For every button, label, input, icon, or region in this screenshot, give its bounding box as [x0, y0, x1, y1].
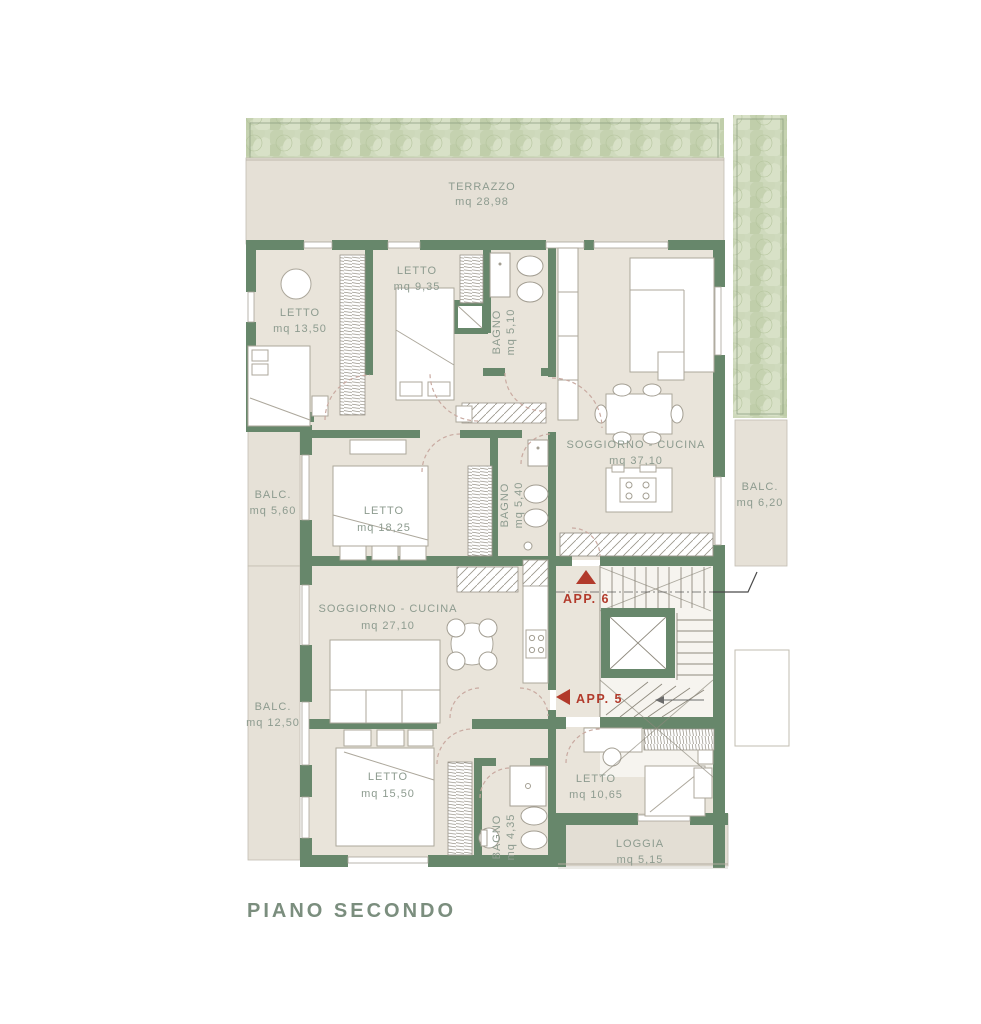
- wc-bagno-5-40: [524, 485, 548, 503]
- chair-letto-13: [281, 269, 311, 299]
- label-balc-6-20: BALC.: [742, 481, 779, 493]
- dining-table-soggiorno-37: [606, 394, 672, 434]
- label-bagno-5-40: BAGNO: [499, 483, 511, 528]
- sink-bagno-5-40: [528, 440, 548, 466]
- wardrobe-letto-10: [644, 729, 714, 750]
- bidet-bagno-5-10: [517, 282, 543, 302]
- floor-plan-drawing: TERRAZZO mq 28,98 LETTO mq 13,50 LETTO m…: [0, 0, 981, 1024]
- label-letto-13: LETTO: [280, 307, 320, 319]
- svg-text:mq 5,10: mq 5,10: [505, 309, 517, 356]
- hedge-top: [246, 118, 724, 164]
- nightstand-letto-10: [698, 750, 713, 764]
- nightstand-letto-9: [456, 406, 472, 422]
- hedge-right: [733, 115, 787, 418]
- svg-text:mq 5,15: mq 5,15: [617, 854, 664, 866]
- wc-bagno-4-35: [521, 807, 547, 825]
- label-balc-12-50: BALC.: [255, 701, 292, 713]
- label-loggia: LOGGIA: [616, 838, 664, 850]
- app6-label: APP. 6: [563, 592, 610, 606]
- cabinet-soggiorno-37: [558, 248, 578, 420]
- bidet-bagno-5-40: [524, 509, 548, 527]
- label-balc-5-60: BALC.: [255, 489, 292, 501]
- svg-text:mq 12,50: mq 12,50: [246, 717, 300, 729]
- kitchen-counter-soggiorno-37: [560, 533, 713, 556]
- sofa-soggiorno-27: [330, 640, 440, 723]
- svg-text:mq 37,10: mq 37,10: [609, 455, 663, 467]
- bidet-bagno-4-35: [521, 831, 547, 849]
- label-soggiorno-37: SOGGIORNO - CUCINA: [566, 439, 705, 451]
- wc-bagno-5-10: [517, 256, 543, 276]
- svg-text:mq 15,50: mq 15,50: [361, 788, 415, 800]
- label-bagno-5-10: BAGNO: [491, 310, 503, 355]
- svg-text:mq 9,35: mq 9,35: [394, 281, 441, 293]
- label-letto-15: LETTO: [368, 771, 408, 783]
- label-letto-10: LETTO: [576, 773, 616, 785]
- wardrobe-letto-15: [448, 762, 472, 855]
- svg-text:mq 13,50: mq 13,50: [273, 323, 327, 335]
- wardrobe-letto-13: [340, 255, 365, 415]
- sink-bagno-5-10: [490, 253, 510, 297]
- floor-plan-page: TERRAZZO mq 28,98 LETTO mq 13,50 LETTO m…: [0, 0, 981, 1024]
- shower-bagno-4-35: [510, 766, 546, 806]
- balcony-right-floor: [735, 420, 787, 566]
- plan-title: PIANO SECONDO: [247, 900, 456, 922]
- balcony-left-lower-floor: [248, 566, 300, 860]
- closet-corridor-app6: [462, 403, 546, 423]
- chair-letto-10: [603, 748, 621, 766]
- label-soggiorno-27: SOGGIORNO - CUCINA: [318, 603, 457, 615]
- app5-label: APP. 5: [576, 692, 623, 706]
- wardrobe-letto-18: [468, 466, 492, 556]
- label-bagno-4-35: BAGNO: [491, 815, 503, 860]
- svg-text:mq 6,20: mq 6,20: [737, 497, 784, 509]
- wardrobe-letto-9: [460, 255, 483, 303]
- svg-text:mq 27,10: mq 27,10: [361, 620, 415, 632]
- svg-text:mq 4,35: mq 4,35: [505, 814, 517, 861]
- label-terrazzo: TERRAZZO: [448, 181, 515, 193]
- label-letto-18: LETTO: [364, 505, 404, 517]
- svg-text:mq 10,65: mq 10,65: [569, 789, 623, 801]
- label-letto-9: LETTO: [397, 265, 437, 277]
- adjacent-building-outline: [735, 650, 789, 746]
- svg-text:mq 5,40: mq 5,40: [513, 482, 525, 529]
- svg-text:mq 5,60: mq 5,60: [250, 505, 297, 517]
- svg-text:mq 18,25: mq 18,25: [357, 522, 411, 534]
- closet-app5: [457, 567, 518, 592]
- kitchen-island-soggiorno-37: [606, 468, 672, 512]
- svg-text:mq 28,98: mq 28,98: [455, 196, 509, 208]
